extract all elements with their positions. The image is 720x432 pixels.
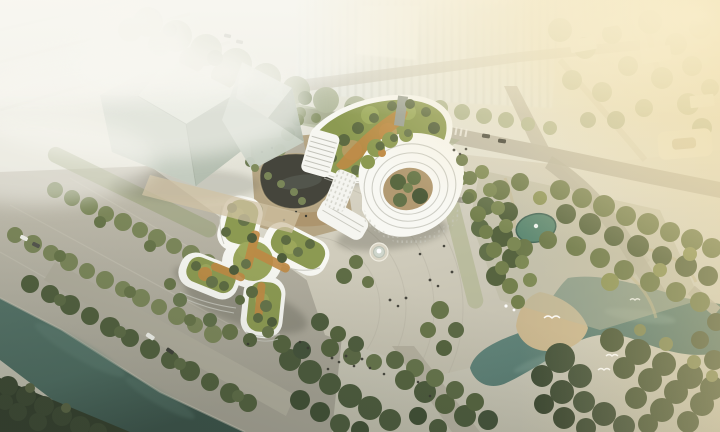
architectural-rendering <box>0 0 720 432</box>
rendering-canvas <box>0 0 720 432</box>
cool-corner-cast <box>0 0 720 432</box>
